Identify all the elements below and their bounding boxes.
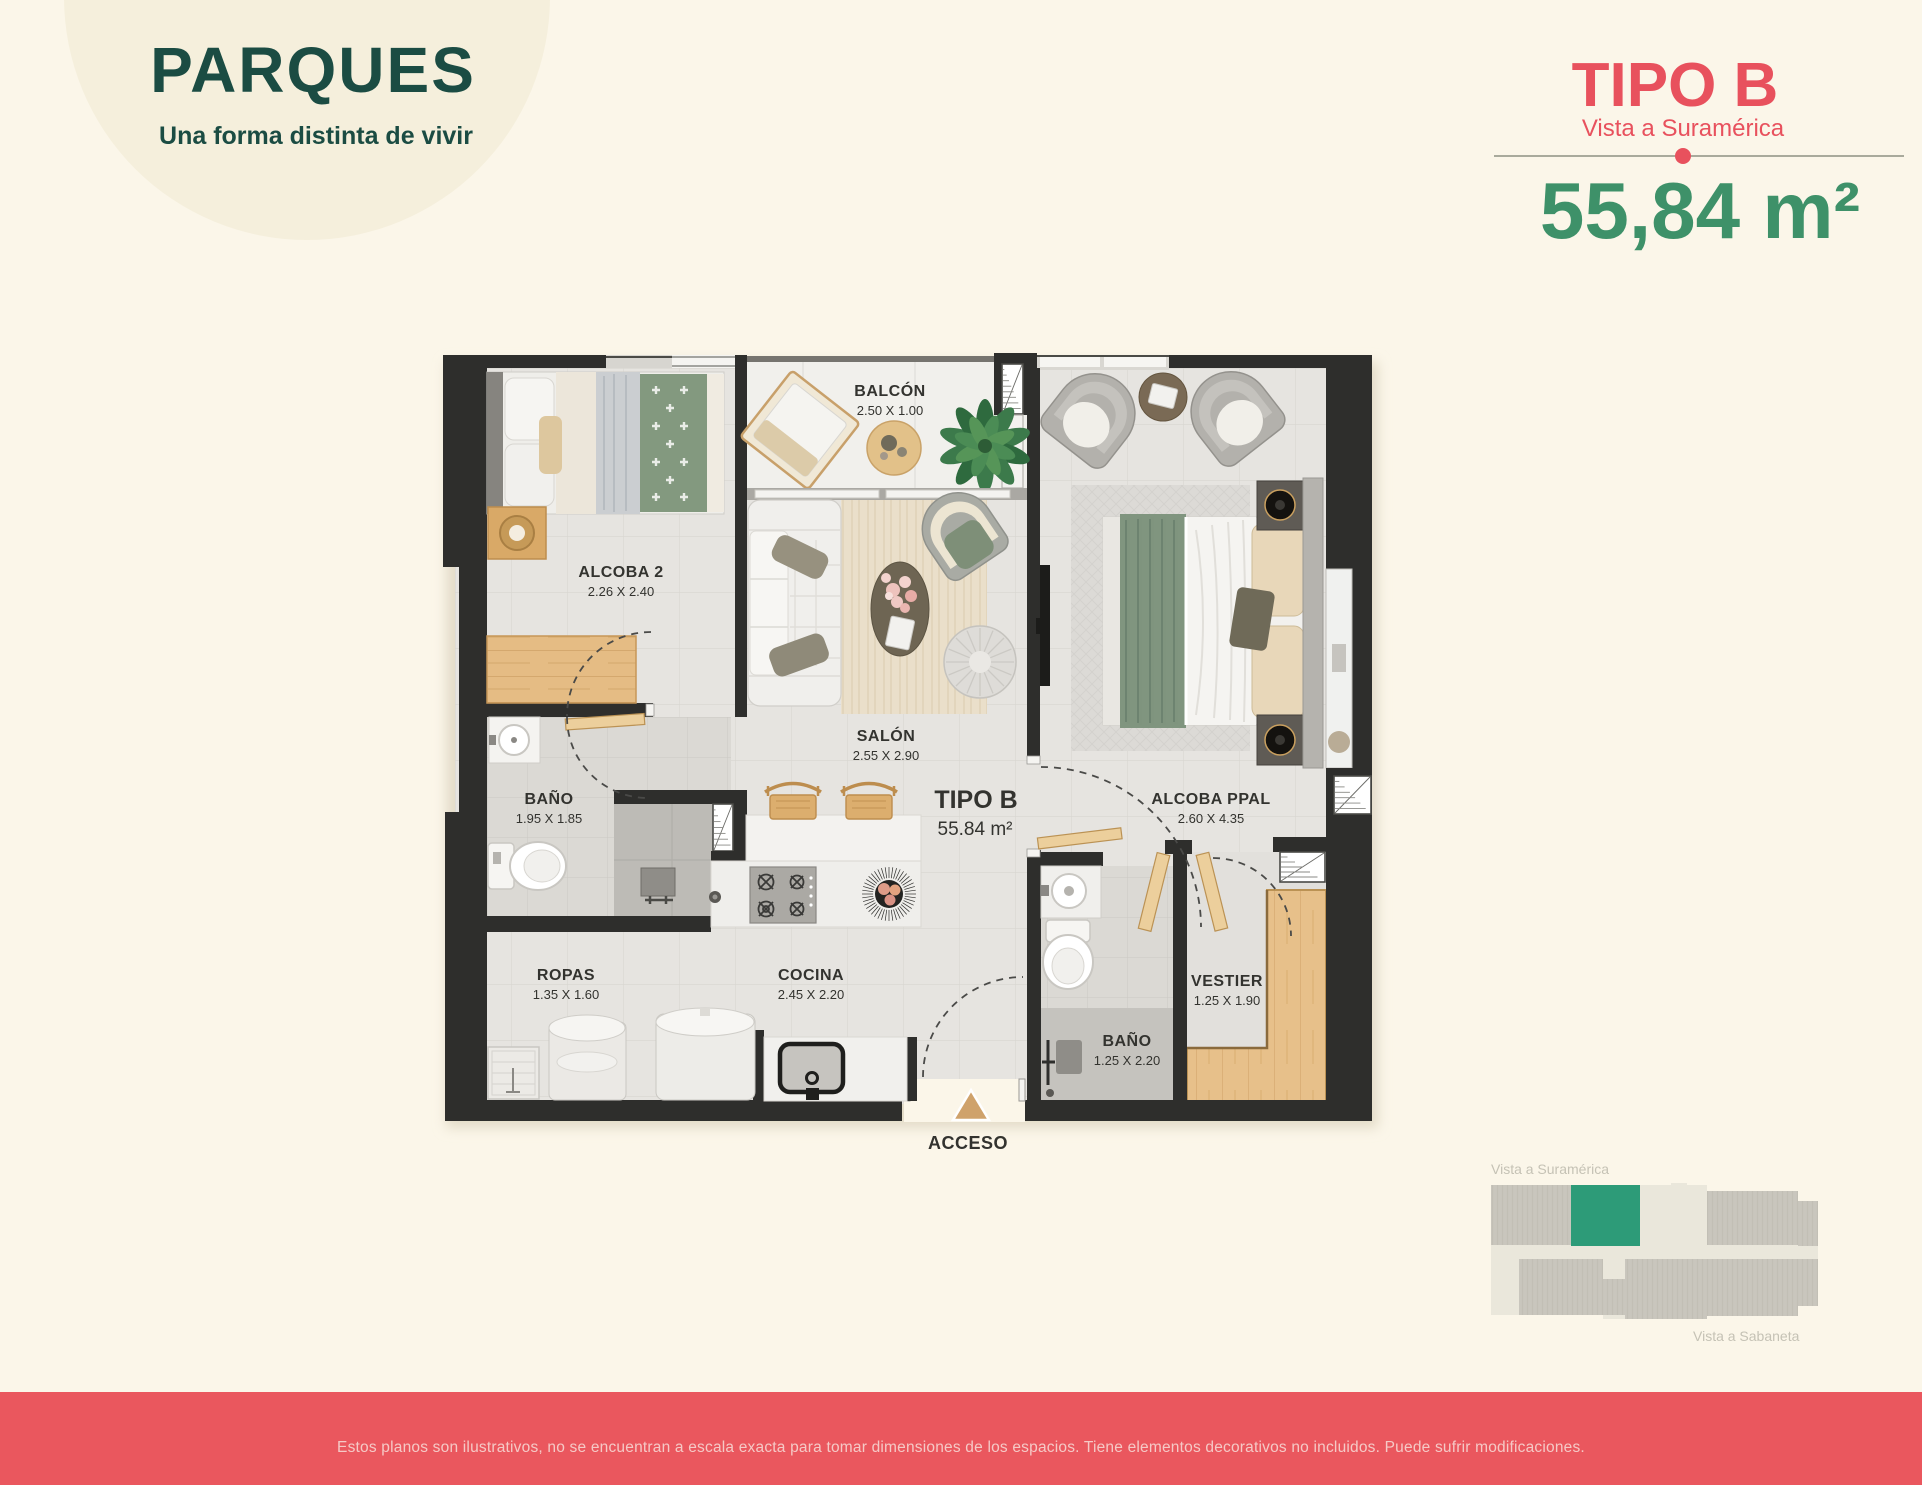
svg-text:55,84 m²: 55,84 m²	[1540, 166, 1860, 255]
svg-text:1.95 X 1.85: 1.95 X 1.85	[516, 811, 583, 826]
svg-text:2.55 X 2.90: 2.55 X 2.90	[853, 748, 920, 763]
svg-text:TIPO B: TIPO B	[1572, 51, 1779, 120]
svg-text:Vista a Suramérica: Vista a Suramérica	[1582, 115, 1785, 142]
svg-text:55.84 m²: 55.84 m²	[938, 819, 1013, 840]
svg-text:SALÓN: SALÓN	[857, 726, 916, 745]
svg-text:2.26 X 2.40: 2.26 X 2.40	[588, 584, 655, 599]
svg-text:COCINA: COCINA	[778, 967, 844, 984]
svg-text:2.50 X 1.00: 2.50 X 1.00	[857, 403, 924, 418]
svg-text:ALCOBA 2: ALCOBA 2	[578, 564, 663, 581]
svg-text:1.25 X 2.20: 1.25 X 2.20	[1094, 1053, 1161, 1068]
svg-text:Una forma distinta de vivir: Una forma distinta de vivir	[159, 122, 473, 150]
svg-text:1.35 X 1.60: 1.35 X 1.60	[533, 987, 600, 1002]
svg-text:2.45 X 2.20: 2.45 X 2.20	[778, 987, 845, 1002]
svg-text:ROPAS: ROPAS	[537, 967, 595, 984]
svg-text:BAÑO: BAÑO	[524, 788, 573, 808]
svg-text:Estos planos son ilustrativos,: Estos planos son ilustrativos, no se enc…	[337, 1439, 1585, 1456]
svg-text:Vista a Sabaneta: Vista a Sabaneta	[1693, 1328, 1800, 1344]
svg-text:BAÑO: BAÑO	[1102, 1030, 1151, 1050]
svg-text:1.25 X 1.90: 1.25 X 1.90	[1194, 993, 1261, 1008]
svg-text:VESTIER: VESTIER	[1191, 973, 1263, 990]
svg-text:2.60 X 4.35: 2.60 X 4.35	[1178, 811, 1245, 826]
svg-text:ACCESO: ACCESO	[928, 1133, 1008, 1153]
svg-text:PARQUES: PARQUES	[150, 34, 476, 106]
svg-text:ALCOBA PPAL: ALCOBA PPAL	[1151, 791, 1270, 808]
svg-text:BALCÓN: BALCÓN	[854, 381, 925, 400]
svg-text:TIPO B: TIPO B	[934, 786, 1017, 814]
svg-text:Vista a Suramérica: Vista a Suramérica	[1491, 1161, 1609, 1177]
